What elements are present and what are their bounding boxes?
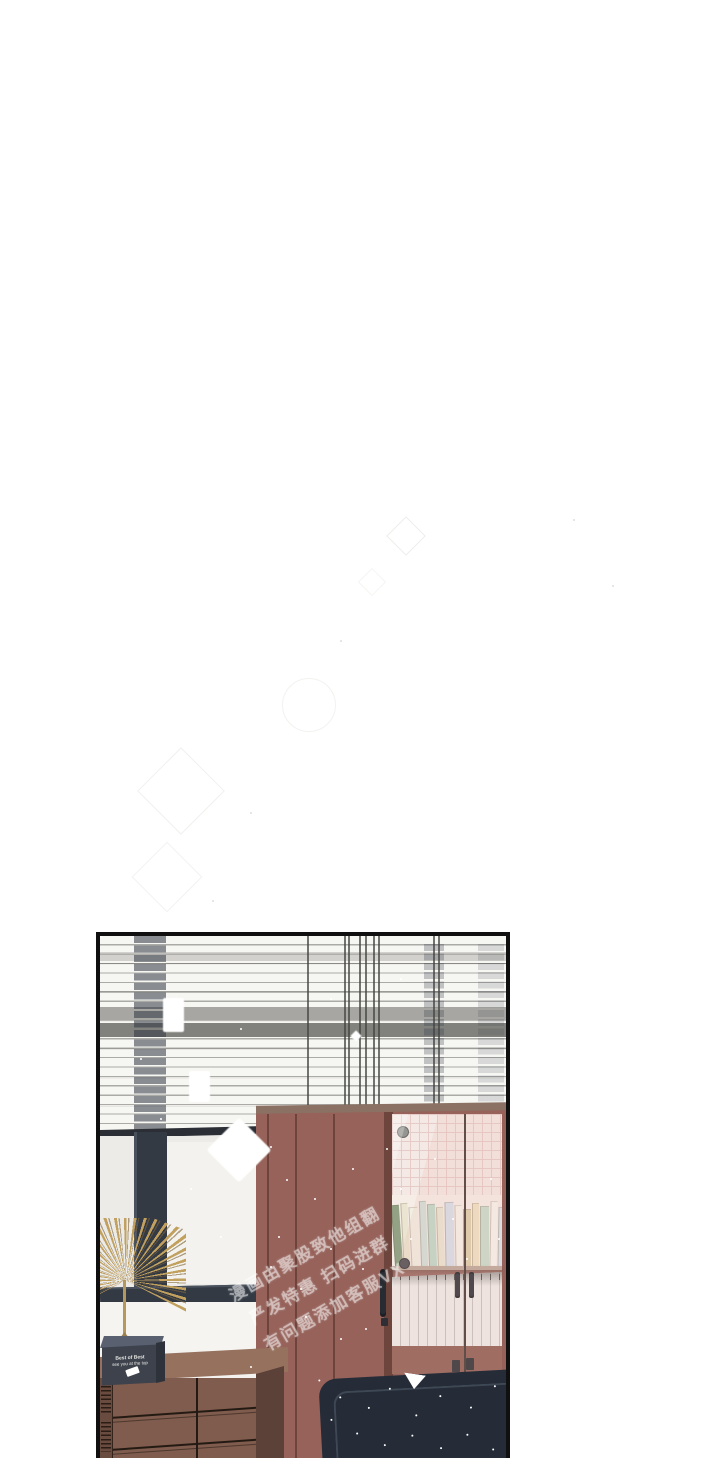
cabinet-door-lock: [381, 1318, 388, 1326]
trophy-base: Best of Best see you at the top: [102, 1345, 158, 1386]
window-frame-through-blinds: [478, 944, 504, 1108]
chest-edge-hatch: [101, 1422, 111, 1452]
drawer-vertical-divider: [196, 1378, 198, 1458]
white-sparkle-icon: [163, 998, 184, 1032]
dust-speck: [250, 812, 252, 814]
dust-speck: [212, 900, 214, 902]
blind-cord: [438, 936, 440, 1108]
ghost-burst-icon: [282, 678, 336, 732]
cabinet-door-handle: [380, 1272, 386, 1314]
dust-speck: [573, 519, 575, 521]
drawer-chest-front: [100, 1378, 258, 1458]
blind-cord: [359, 936, 361, 1120]
white-sparkle-icon: [189, 1071, 210, 1102]
dust-speck: [340, 640, 342, 642]
webtoon-page: Best of Best see you at the top 漫画由聚股致他组…: [0, 0, 720, 1458]
blind-cord: [365, 936, 367, 1120]
blind-cord: [344, 936, 346, 1120]
dust-speck: [612, 585, 614, 587]
blind-cord: [307, 936, 309, 1120]
blind-cord: [348, 936, 350, 1120]
glass-reflection: [392, 1114, 502, 1374]
trophy-base-side: [156, 1341, 165, 1383]
blind-cord: [378, 936, 380, 1120]
cabinet-seam: [295, 1114, 297, 1458]
blind-cord: [373, 936, 375, 1120]
ghost-sparkle-icon: [137, 747, 225, 835]
blind-cord: [433, 936, 435, 1108]
couch-cushion-outline: [333, 1381, 510, 1458]
window-frame-through-blinds: [134, 936, 166, 1134]
comic-panel: Best of Best see you at the top 漫画由聚股致他组…: [96, 932, 510, 1458]
drawer-chest-side: [256, 1366, 284, 1458]
ghost-sparkle-icon: [132, 842, 203, 913]
snow-speckles: [318, 1379, 320, 1381]
ghost-sparkle-icon: [386, 516, 426, 556]
snow-speckles: [100, 936, 102, 938]
ghost-sparkle-icon: [358, 568, 386, 596]
chest-edge-hatch: [101, 1386, 111, 1414]
